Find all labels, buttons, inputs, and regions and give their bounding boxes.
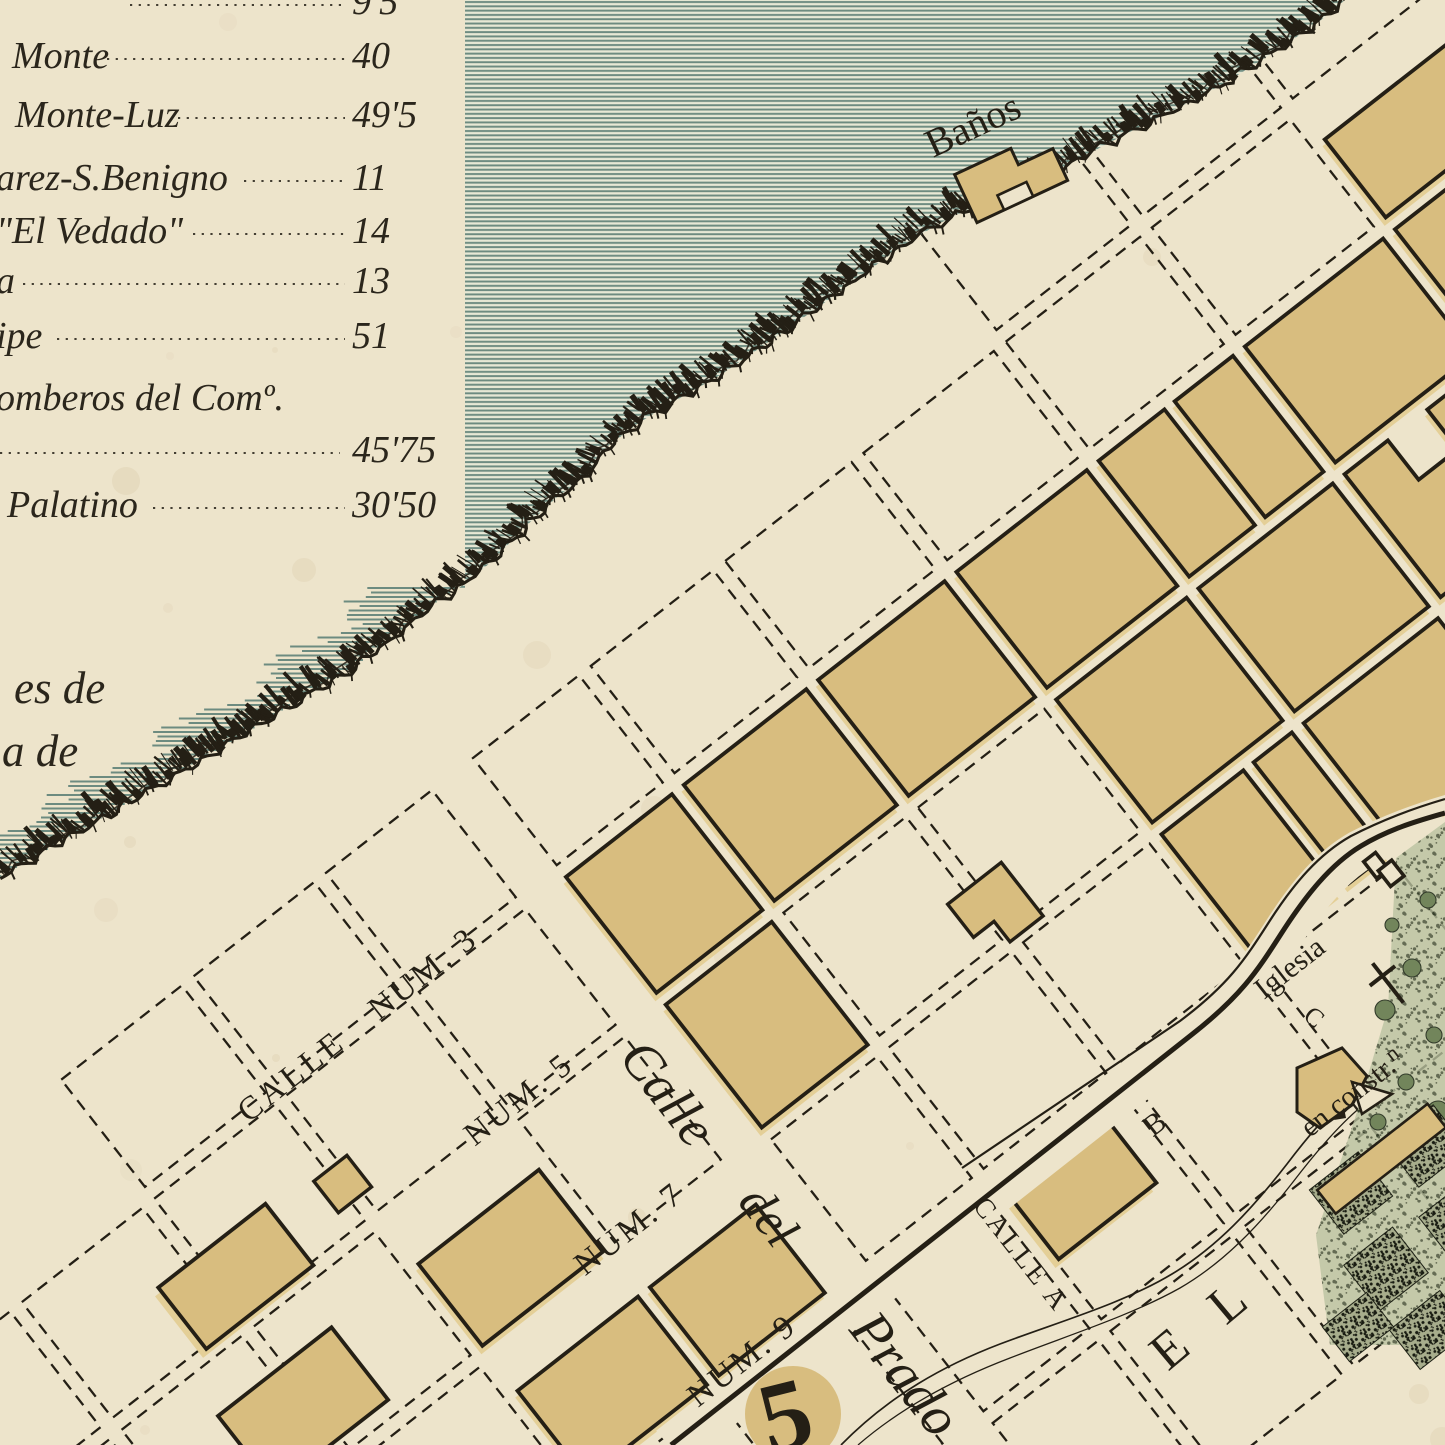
svg-text:es de: es de bbox=[14, 663, 105, 713]
svg-text:Monte-Luz: Monte-Luz bbox=[14, 94, 180, 136]
svg-text:Monte: Monte bbox=[11, 35, 109, 77]
svg-text:omberos del Comº.: omberos del Comº. bbox=[0, 377, 284, 419]
svg-text:9'5: 9'5 bbox=[352, 0, 398, 23]
svg-text:Palatino: Palatino bbox=[6, 484, 138, 526]
svg-text:49'5: 49'5 bbox=[352, 94, 417, 136]
svg-text:51: 51 bbox=[352, 315, 390, 357]
svg-text:"El Vedado": "El Vedado" bbox=[0, 210, 184, 252]
svg-text:30'50: 30'50 bbox=[351, 484, 436, 526]
svg-text:40: 40 bbox=[352, 35, 390, 77]
svg-text:a de: a de bbox=[2, 726, 78, 776]
svg-text:11: 11 bbox=[352, 157, 387, 199]
svg-text:13: 13 bbox=[352, 260, 390, 302]
svg-text:a: a bbox=[0, 260, 15, 302]
svg-text:45'75: 45'75 bbox=[352, 429, 436, 471]
svg-text:arez-S.Benigno: arez-S.Benigno bbox=[0, 157, 228, 199]
svg-text:ipe: ipe bbox=[0, 315, 43, 357]
svg-text:14: 14 bbox=[352, 210, 390, 252]
